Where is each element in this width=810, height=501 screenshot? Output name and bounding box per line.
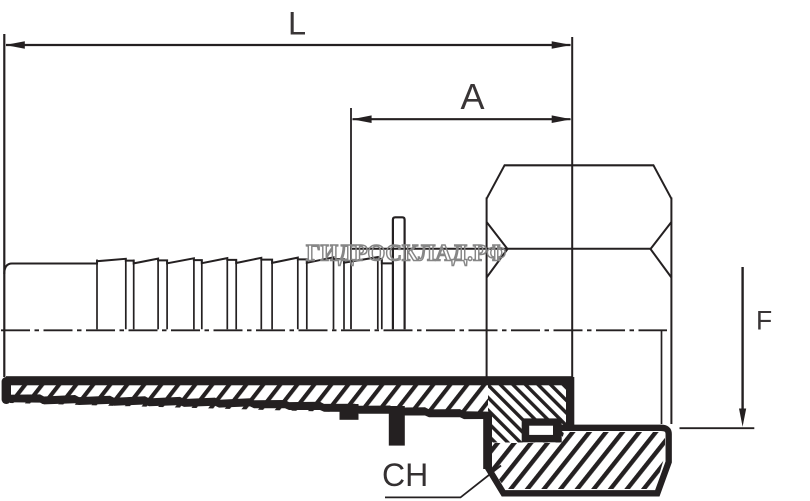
svg-text:F: F	[756, 306, 772, 336]
svg-text:ГИДРОСКЛАД.РФ: ГИДРОСКЛАД.РФ	[306, 241, 506, 267]
svg-text:L: L	[288, 6, 306, 42]
svg-text:CH: CH	[382, 457, 428, 493]
svg-text:A: A	[461, 76, 485, 117]
